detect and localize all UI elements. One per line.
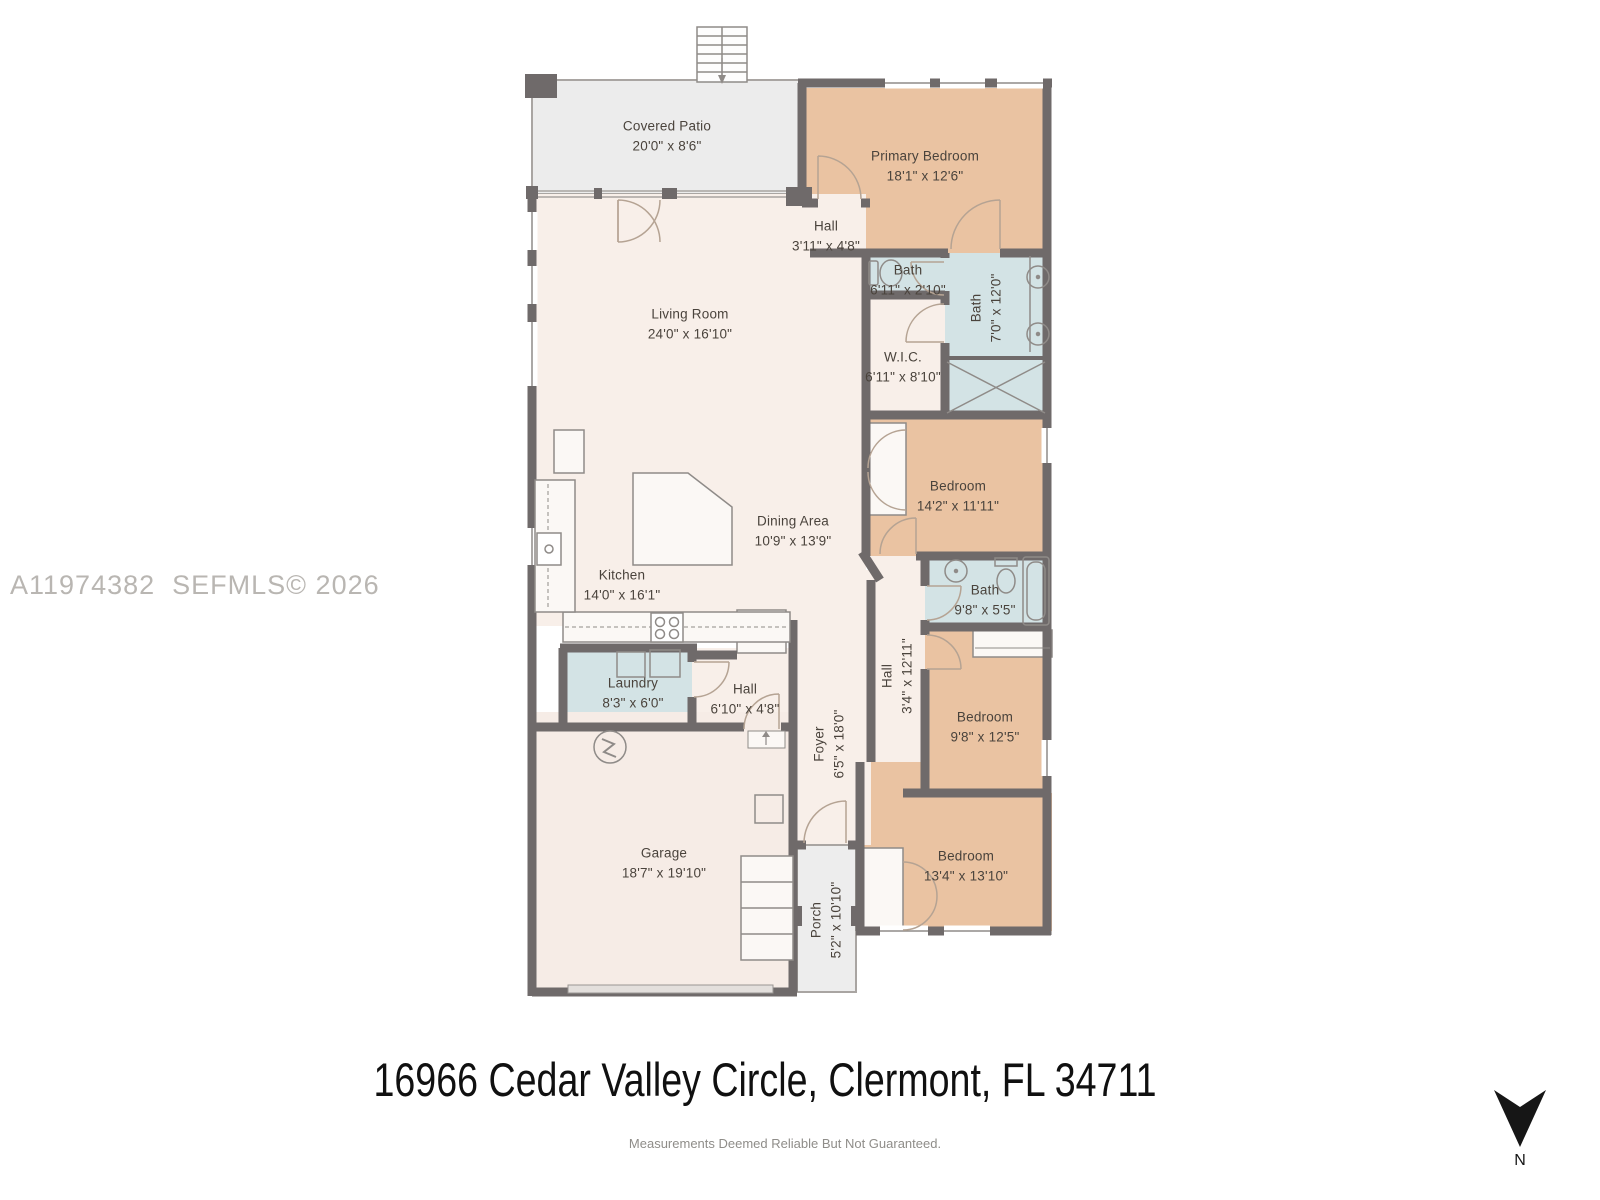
room-label-primary-bedroom: Primary Bedroom 18'1" x 12'6": [871, 146, 979, 185]
room-name: Bedroom: [924, 846, 1008, 866]
room-dims: 6'5" x 18'0": [829, 710, 849, 779]
room-label-bath-primary: Bath 7'0" x 12'0": [966, 274, 1005, 343]
room-dims: 24'0" x 16'10": [648, 324, 732, 344]
fridge: [554, 430, 584, 473]
room-label-covered-patio: Covered Patio 20'0" x 8'6": [623, 116, 711, 155]
room-name: Living Room: [648, 304, 732, 324]
room-name: Covered Patio: [623, 116, 711, 136]
room-label-bedroom-3: Bedroom 9'8" x 12'5": [951, 707, 1020, 746]
room-name: Bath: [966, 274, 986, 343]
room-label-bedroom-4: Bedroom 13'4" x 13'10": [924, 846, 1008, 885]
room-label-hall-center: Hall 3'4" x 12'11": [877, 638, 916, 714]
room-dims: 6'11" x 2'10": [870, 280, 946, 300]
garage-storage: [741, 856, 793, 960]
room-dims: 6'11" x 8'10": [865, 367, 941, 387]
room-name: Hall: [711, 679, 780, 699]
room-dims: 3'11" x 4'8": [792, 236, 860, 256]
room-label-hall-lower: Hall 6'10" x 4'8": [711, 679, 780, 718]
kitchen-sink: [537, 533, 561, 565]
room-dims: 9'8" x 5'5": [954, 600, 1015, 620]
compass-label: N: [1514, 1152, 1526, 1170]
room-label-bath-powder: Bath 6'11" x 2'10": [870, 260, 946, 299]
room-name: Bath: [870, 260, 946, 280]
room-dims: 10'9" x 13'9": [755, 531, 832, 551]
bedroom-2-closet: [866, 423, 906, 515]
room-name: Porch: [806, 882, 826, 959]
room-label-dining-area: Dining Area 10'9" x 13'9": [755, 511, 832, 550]
room-label-wic: W.I.C. 6'11" x 8'10": [865, 347, 941, 386]
room-dims: 6'10" x 4'8": [711, 699, 780, 719]
room-name: Foyer: [809, 710, 829, 779]
room-label-garage: Garage 18'7" x 19'10": [622, 843, 706, 882]
bedroom-4-closet: [862, 848, 903, 934]
room-name: Bedroom: [917, 476, 999, 496]
patio-corner-post: [525, 74, 557, 98]
room-dims: 9'8" x 12'5": [951, 727, 1020, 747]
room-name: Dining Area: [755, 511, 832, 531]
room-label-hall-upper: Hall 3'11" x 4'8": [792, 216, 860, 255]
room-name: Kitchen: [584, 565, 661, 585]
room-label-porch: Porch 5'2" x 10'10": [806, 882, 845, 959]
room-dims: 5'2" x 10'10": [826, 882, 846, 959]
floor-plan-page: Covered Patio 20'0" x 8'6" Primary Bedro…: [0, 0, 1600, 1200]
room-dims: 18'7" x 19'10": [622, 863, 706, 883]
room-name: Bedroom: [951, 707, 1020, 727]
room-label-bedroom-2: Bedroom 14'2" x 11'11": [917, 476, 999, 515]
room-dims: 18'1" x 12'6": [871, 166, 979, 186]
room-name: Laundry: [602, 673, 663, 693]
room-dims: 14'2" x 11'11": [917, 496, 999, 516]
room-dims: 7'0" x 12'0": [986, 274, 1006, 343]
room-dims: 8'3" x 6'0": [602, 693, 663, 713]
disclaimer-text: Measurements Deemed Reliable But Not Gua…: [0, 1136, 1570, 1151]
room-name: Hall: [877, 638, 897, 714]
room-label-bath-2: Bath 9'8" x 5'5": [954, 580, 1015, 619]
stove: [651, 613, 683, 642]
room-dims: 13'4" x 13'10": [924, 866, 1008, 886]
room-dims: 20'0" x 8'6": [623, 136, 711, 156]
room-label-living-room: Living Room 24'0" x 16'10": [648, 304, 732, 343]
room-name: Primary Bedroom: [871, 146, 979, 166]
room-dims: 3'4" x 12'11": [897, 638, 917, 714]
room-name: Bath: [954, 580, 1015, 600]
room-dims: 14'0" x 16'1": [584, 585, 661, 605]
bedroom-3-closet: [973, 630, 1052, 657]
garage-door: [568, 985, 773, 993]
room-name: W.I.C.: [865, 347, 941, 367]
room-label-kitchen: Kitchen 14'0" x 16'1": [584, 565, 661, 604]
porch-post-right: [851, 906, 861, 926]
dining-strip-area: [785, 570, 875, 626]
address-title: 16966 Cedar Valley Circle, Clermont, FL …: [153, 1052, 1377, 1107]
patio-post: [526, 186, 538, 199]
room-label-foyer: Foyer 6'5" x 18'0": [809, 710, 848, 779]
mls-watermark: A11974382 SEFMLS© 2026: [10, 570, 380, 601]
room-label-laundry: Laundry 8'3" x 6'0": [602, 673, 663, 712]
room-name: Hall: [792, 216, 860, 236]
room-name: Garage: [622, 843, 706, 863]
